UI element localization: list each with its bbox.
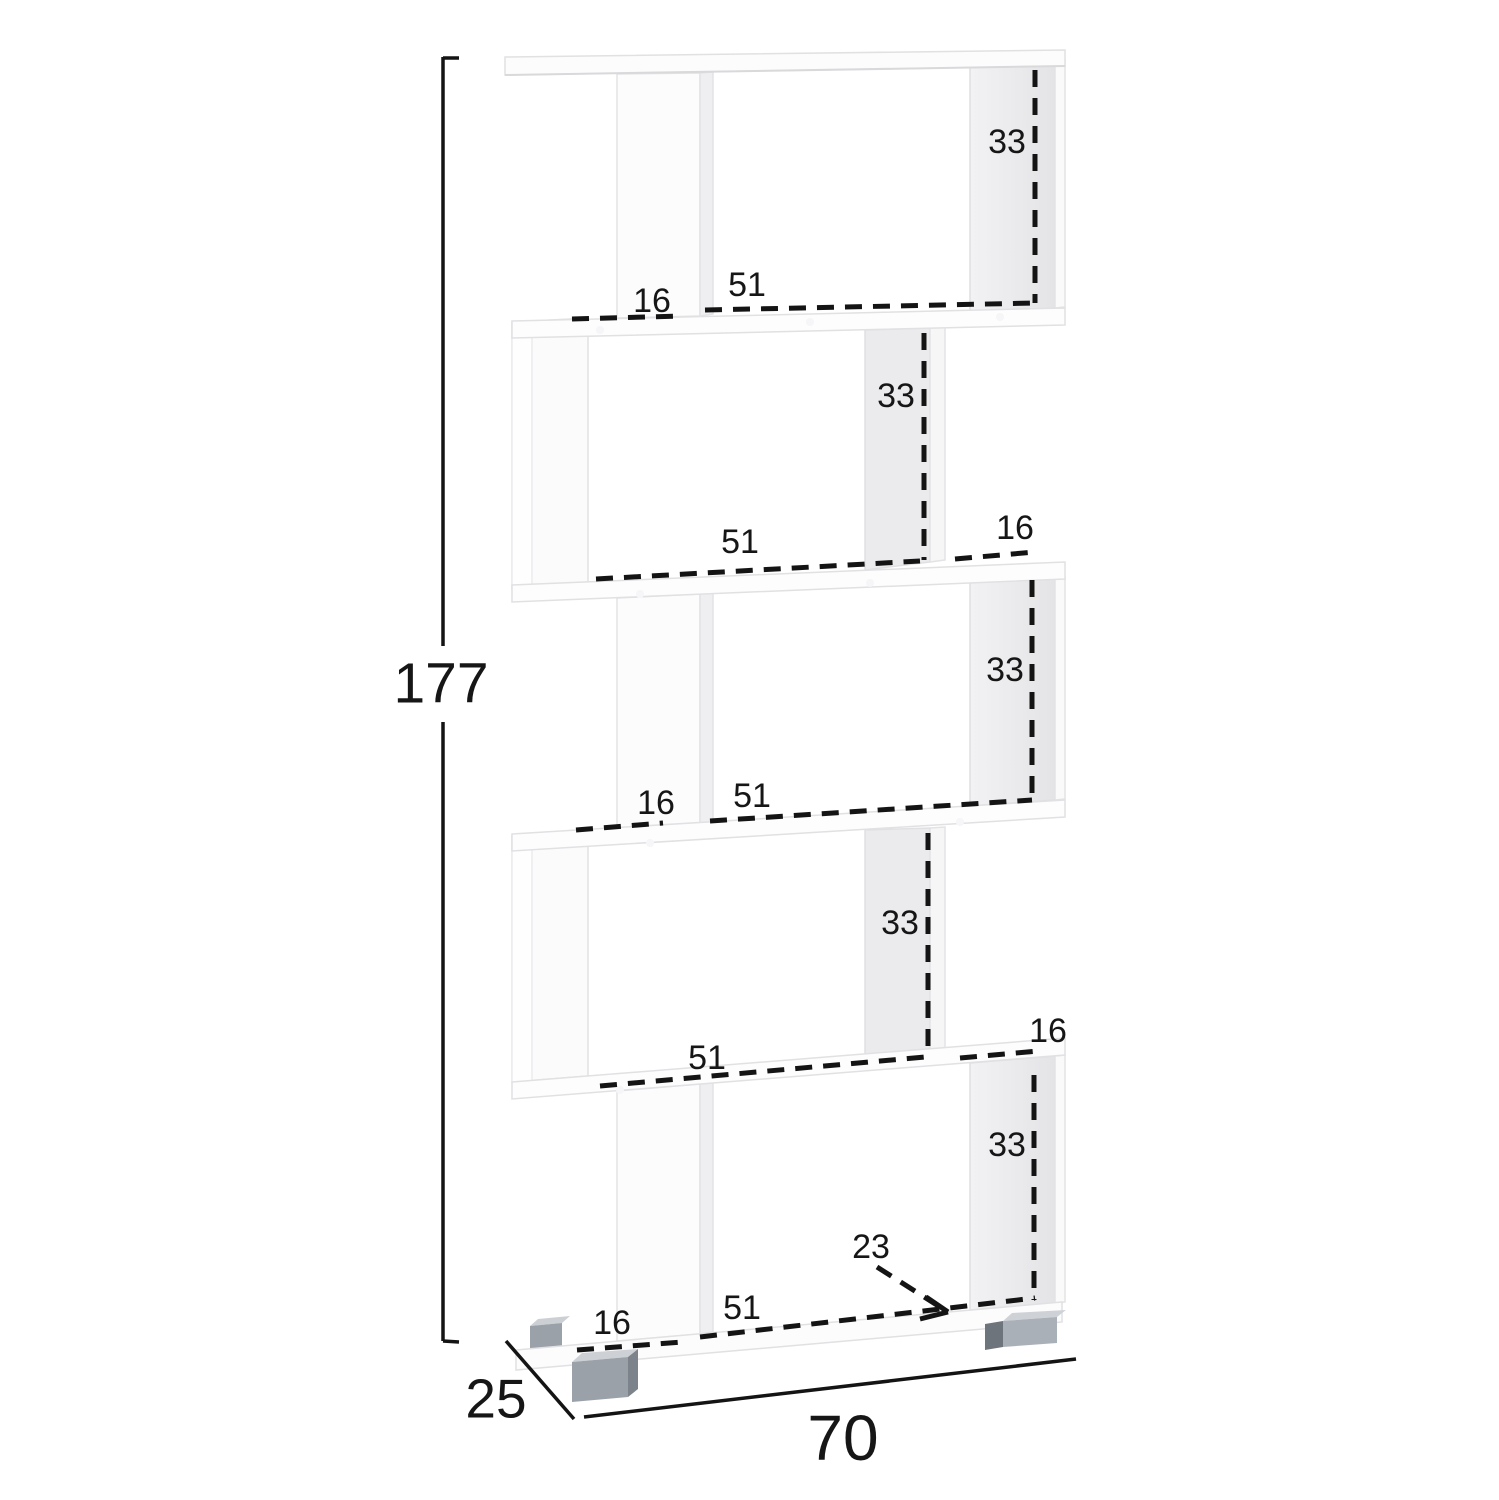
tier-1-side-gap-label: 16 [633,284,671,318]
tier-2-compartment-height-label: 33 [877,379,915,413]
tier-5-base-depth-label: 23 [852,1230,890,1264]
tier-4-side-gap-label: 16 [1029,1014,1067,1048]
dimension-diagram: 177 25 70 33 51 16 33 51 16 33 51 16 33 … [0,0,1499,1500]
bookcase-drawing [0,0,1499,1500]
tier-2-side-gap-label: 16 [996,511,1034,545]
overall-height-label: 177 [393,656,488,713]
overall-width-label: 70 [807,1406,878,1470]
tier-2-compartment-width-label: 51 [721,525,759,559]
tier-4-compartment-width-label: 51 [688,1041,726,1075]
tier-1-compartment-height-label: 33 [988,125,1026,159]
overall-depth-label: 25 [465,1372,526,1427]
tier-3-side-gap-label: 16 [637,786,675,820]
vertical-panels [512,59,1065,1341]
tier-5-compartment-width-label: 51 [723,1291,761,1325]
tier-5-compartment-height-label: 33 [988,1128,1026,1162]
tier-4-compartment-height-label: 33 [881,906,919,940]
tier-3-compartment-width-label: 51 [733,779,771,813]
tier-3-compartment-height-label: 33 [986,653,1024,687]
tier-5-side-gap-label: 16 [593,1306,631,1340]
tier-1-compartment-width-label: 51 [728,268,766,302]
